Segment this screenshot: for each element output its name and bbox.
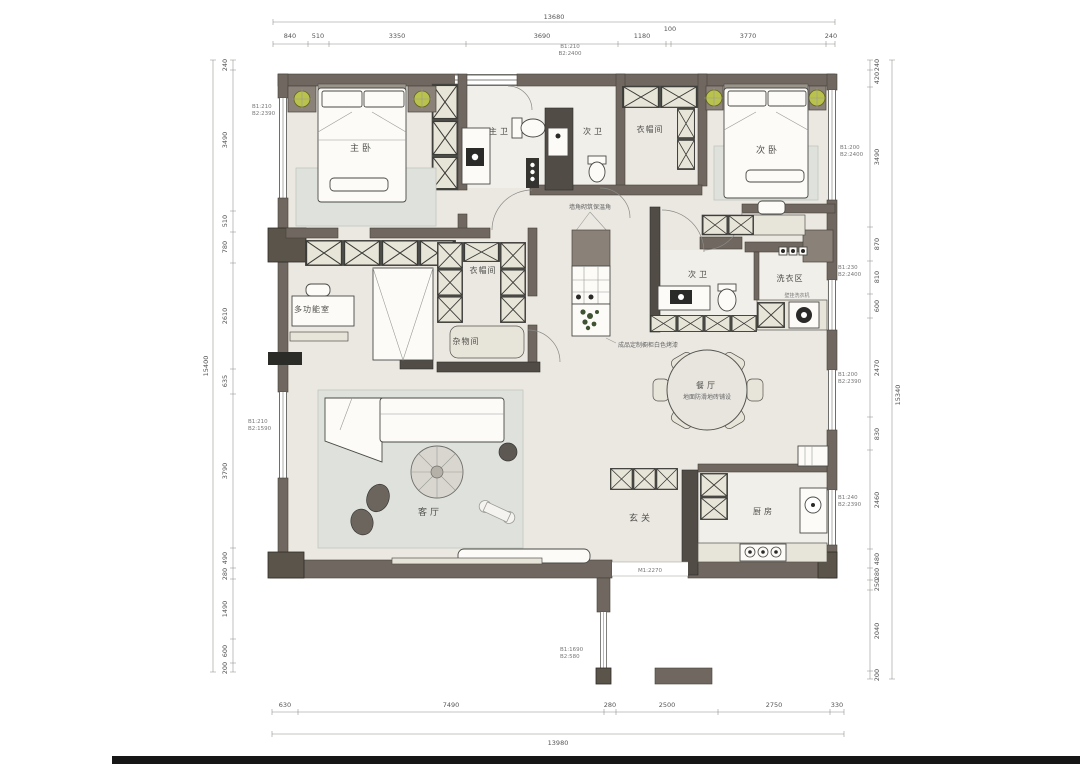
dim-label: 2470	[873, 360, 881, 377]
dimensions-bottom: 630 7490 280 2500 2750 330 13980	[272, 701, 844, 747]
dim-label: 200	[221, 662, 229, 674]
toilet-icon	[512, 118, 545, 138]
room-label-entry: 玄关	[629, 512, 653, 524]
room-label-master-bath: 主卫	[489, 126, 511, 136]
floor-plan-canvas: 840 510 3350 3690 1180 100 3770 240 1368…	[0, 0, 1080, 764]
dim-label: 810	[873, 271, 881, 283]
dim-total-top: 13680	[544, 13, 565, 21]
dim-label: 635	[221, 375, 229, 387]
dim-label: 1180	[634, 32, 651, 40]
dim-label: 3790	[221, 463, 229, 480]
dim-label: 3490	[221, 132, 229, 149]
dining-table	[667, 350, 747, 430]
note-entry-door: M1:2270	[638, 568, 663, 574]
room-label-cloakroom-top: 衣帽间	[637, 124, 664, 134]
note-island-corner: 墙角砌筑保温角	[569, 203, 611, 211]
dim-label: 420	[873, 72, 881, 84]
dim-label: 3490	[873, 149, 881, 166]
window-tag: B2:2390	[252, 111, 276, 117]
window-tag: B1:200	[838, 372, 858, 378]
dimensions-top: 840 510 3350 3690 1180 100 3770 240 1368…	[273, 13, 837, 47]
stove-icon	[740, 544, 786, 561]
dim-label: 870	[873, 238, 881, 250]
dim-total-left: 15400	[202, 356, 210, 377]
dim-label: 2750	[766, 701, 783, 709]
hall-island	[572, 212, 616, 343]
bottom-crop-bar	[112, 756, 1080, 764]
dim-label: 2040	[873, 623, 881, 640]
room-label-master-bedroom: 主卧	[350, 142, 374, 154]
room-label-living: 客厅	[418, 506, 442, 518]
room-label-second-bath-mid: 次卫	[688, 269, 710, 279]
dim-label: 490	[221, 552, 229, 564]
note-washer: 壁挂洗衣机	[784, 292, 809, 299]
dimensions-right: 240 420 3490 870 810 600 2470 830 2460 4…	[867, 59, 902, 681]
dim-label: 780	[221, 241, 229, 253]
window-tag: B1:240	[838, 495, 858, 501]
room-label-second-bedroom: 次卧	[756, 144, 780, 156]
window-tag: B1:1690	[560, 647, 584, 653]
washing-machine-icon	[789, 302, 819, 328]
window-tag: B2:2400	[840, 152, 864, 158]
dim-label: 240	[873, 59, 881, 71]
note-island-cabinet: 成品定制橱柜白色烤漆	[618, 341, 678, 349]
floor-plan-drawing: 840 510 3350 3690 1180 100 3770 240 1368…	[0, 0, 1080, 764]
room-label-cloakroom-mid: 衣帽间	[470, 265, 497, 275]
window-tag: B1:230	[838, 265, 858, 271]
dim-label: 240	[825, 32, 837, 40]
dim-label: 480	[873, 553, 881, 565]
note-dining-floor: 地面防滑地砖铺设	[683, 393, 731, 401]
laundry-area	[757, 300, 827, 330]
dim-label: 250	[873, 579, 881, 591]
dim-label: 280	[221, 568, 229, 580]
folding-bed	[373, 268, 433, 360]
dim-label: 280	[873, 568, 881, 580]
dim-label: 100	[664, 25, 676, 33]
room-label-laundry: 洗衣区	[777, 273, 804, 283]
sofa	[380, 398, 504, 442]
dim-label: 510	[312, 32, 324, 40]
toilet-icon	[588, 156, 606, 182]
dim-label: 7490	[443, 701, 460, 709]
room-label-multi-function: 多功能室	[294, 304, 330, 314]
dim-label: 510	[221, 215, 229, 227]
room-label-storage: 杂物间	[453, 336, 480, 346]
window-tag: B2:2400	[558, 51, 582, 57]
round-coffee-table	[411, 446, 463, 498]
dim-label: 3350	[389, 32, 406, 40]
window-tag: B2:1590	[248, 426, 272, 432]
window-tag: B2:580	[560, 654, 580, 660]
window-tag: B1:200	[840, 145, 860, 151]
fridge-icon	[798, 446, 828, 466]
window-tag: B2:2400	[838, 272, 862, 278]
window-tag: B2:2390	[838, 502, 862, 508]
window-tag: B2:2390	[838, 379, 862, 385]
dim-label: 1490	[221, 601, 229, 618]
dim-label: 830	[873, 428, 881, 440]
dim-label: 240	[221, 59, 229, 71]
dim-label: 600	[873, 300, 881, 312]
toilet-icon	[718, 284, 736, 311]
dim-label: 3690	[534, 32, 551, 40]
window-tag: B1:210	[252, 104, 272, 110]
dim-label: 200	[873, 669, 881, 681]
dim-label: 2460	[873, 492, 881, 509]
dim-label: 840	[284, 32, 296, 40]
window-tag: B1:210	[248, 419, 268, 425]
dim-total-right: 15340	[894, 385, 902, 406]
dim-label: 2500	[659, 701, 676, 709]
dim-label: 2610	[221, 308, 229, 325]
room-label-second-bath-top: 次卫	[583, 126, 605, 136]
window-tag: B1:210	[560, 44, 580, 50]
dimensions-left: 240 3490 510 780 2610 635 3790 490 280 1…	[202, 59, 236, 674]
dim-total-bottom: 13980	[548, 739, 569, 747]
dim-label: 280	[604, 701, 616, 709]
dim-label: 600	[221, 645, 229, 657]
desk-chair	[758, 201, 785, 214]
chair	[306, 284, 330, 296]
dim-label: 330	[831, 701, 843, 709]
room-label-dining: 餐厅	[696, 381, 718, 390]
room-label-kitchen: 厨房	[753, 506, 775, 516]
dim-label: 3770	[740, 32, 757, 40]
dim-label: 630	[279, 701, 291, 709]
